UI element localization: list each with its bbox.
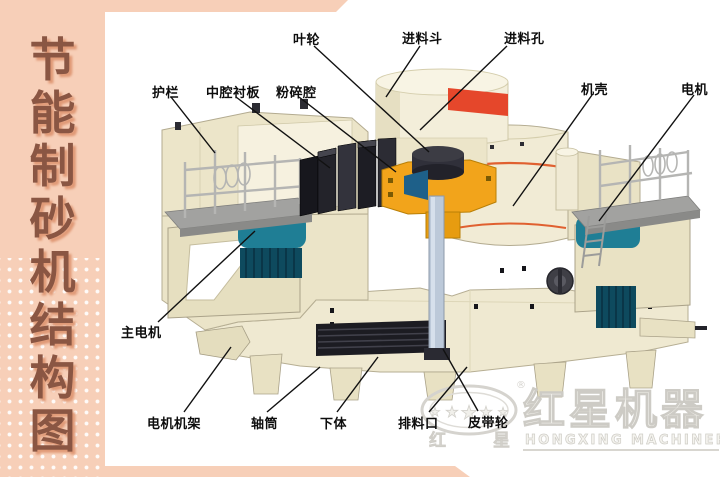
label-cavity-liner: 中腔衬板 (206, 82, 260, 101)
label-shaft-tube: 轴筒 (251, 413, 278, 432)
label-belt-pulley: 皮带轮 (468, 412, 509, 431)
svg-text:★: ★ (445, 403, 458, 421)
structure-diagram-page: 节 能 制 砂 机 结 构 图 (0, 0, 720, 477)
label-casing: 机壳 (581, 79, 608, 98)
label-lower-body: 下体 (320, 413, 347, 432)
logo-cn-text: 红星机器 (523, 385, 707, 434)
label-discharge-port: 排料口 (398, 413, 439, 432)
label-main-motor: 主电机 (121, 322, 162, 341)
hongxing-logo: ★ ★ ★ ★ ★ ® 红 星 红星机器 HONGXING MACHINERY (0, 0, 720, 477)
label-feed-hopper: 进料斗 (402, 28, 443, 47)
label-guardrail: 护栏 (152, 82, 179, 101)
logo-underline (523, 449, 719, 451)
logo-en-text: HONGXING MACHINERY (525, 433, 720, 448)
label-crushing-cavity: 粉碎腔 (276, 82, 317, 101)
label-feed-hole: 进料孔 (504, 28, 545, 47)
logo-char-xing: 星 (493, 431, 510, 451)
label-impeller: 叶轮 (293, 29, 320, 48)
label-motor-frame: 电机机架 (147, 413, 201, 432)
logo-char-hong: 红 (429, 430, 446, 451)
label-motor: 电机 (681, 79, 708, 98)
